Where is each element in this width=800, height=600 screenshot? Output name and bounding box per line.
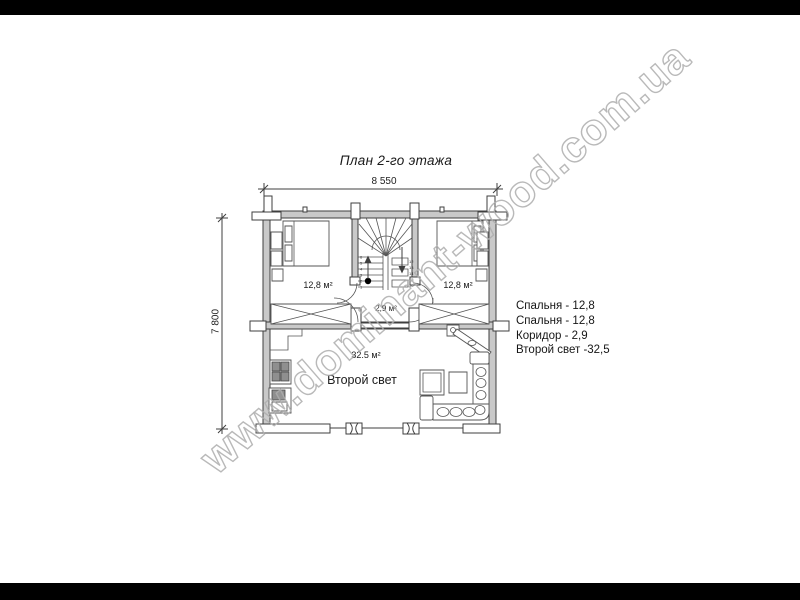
bedroom-left-area-label: 12,8 м² — [288, 280, 348, 290]
legend-item: Второй свет -32,5 — [516, 343, 686, 358]
bedroom-left-furniture — [271, 221, 351, 324]
dresser-icon — [272, 269, 283, 281]
cabinet-icon — [271, 232, 282, 249]
table-icon — [420, 370, 444, 395]
page-title: План 2-го этажа — [336, 153, 456, 168]
wall-bottom-right-segment — [463, 424, 500, 433]
bottom-joint-left — [346, 423, 362, 434]
legend-item: Спальня - 12,8 — [516, 299, 686, 314]
legend-item: Коридор - 2,9 — [516, 329, 686, 344]
pillow-icon — [285, 245, 292, 261]
stair-wall-left — [352, 218, 358, 283]
bottom-joint-right — [403, 423, 419, 434]
floor-plan-page: 1 2 3 4 5 6 12 13 14 15 16 — [0, 0, 800, 600]
stair-winders — [358, 218, 412, 256]
stair-up-arrow — [365, 256, 372, 280]
cabinet-icon — [271, 251, 282, 266]
dimension-label-height: 7 800 — [211, 302, 222, 342]
pillow-icon — [285, 226, 292, 242]
legend-item: Спальня - 12,8 — [516, 314, 686, 329]
dimension-label-width: 8 550 — [352, 176, 416, 187]
floor-step-line — [270, 329, 302, 350]
armchair-icon — [449, 372, 467, 393]
room-legend: Спальня - 12,8 Спальня - 12,8 Коридор - … — [516, 299, 686, 358]
